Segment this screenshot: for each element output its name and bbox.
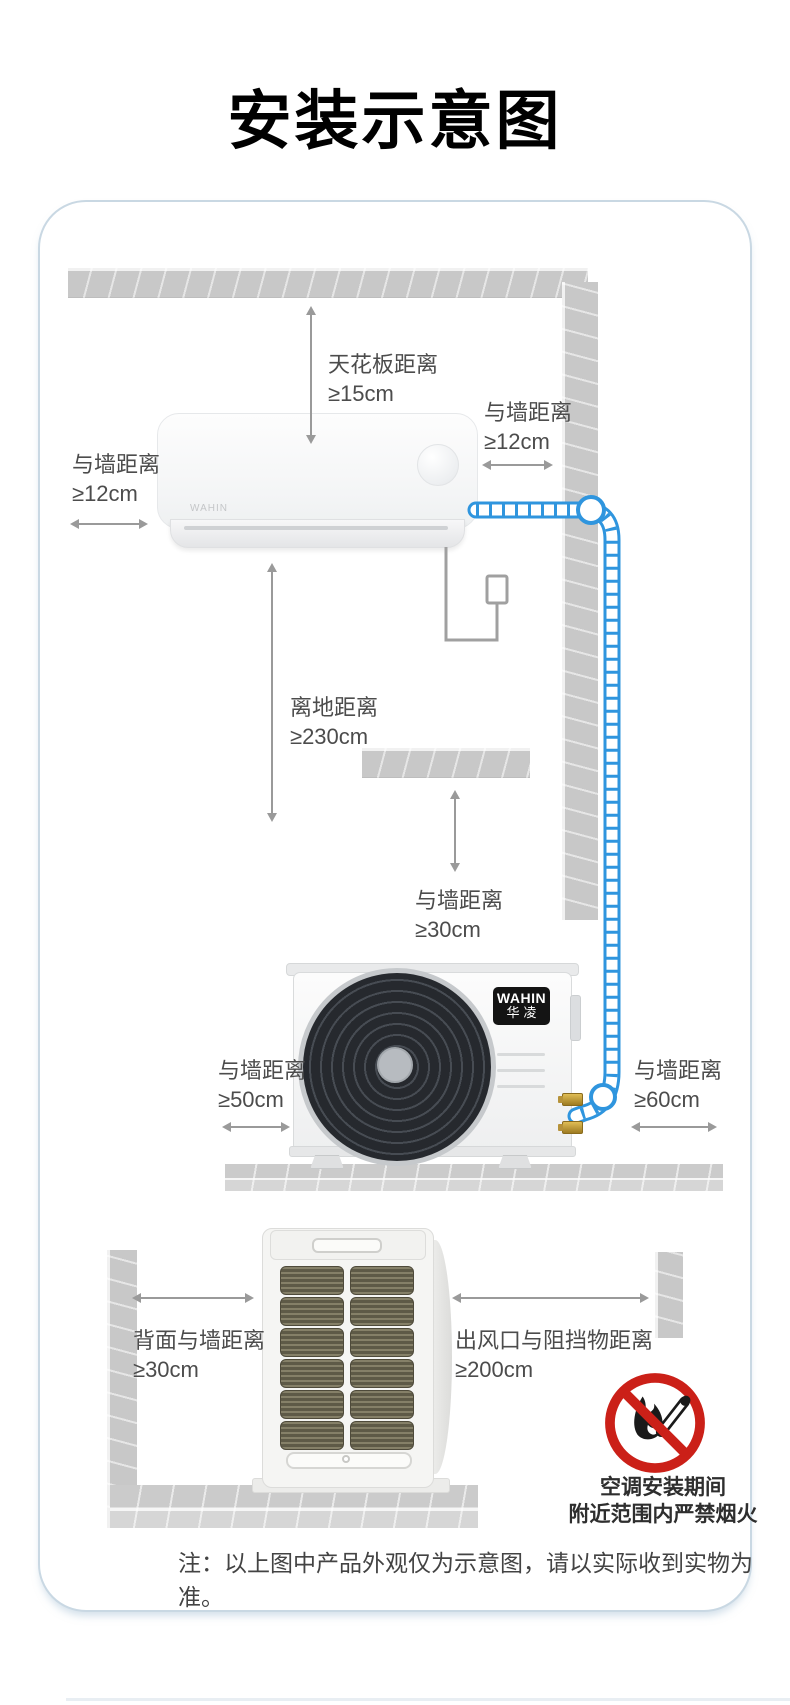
outdoor-unit-foot (310, 1155, 344, 1169)
topview-grille-cell (280, 1390, 344, 1419)
indoor-unit-outlet-slot (184, 526, 448, 530)
outdoor-side-vent (497, 1053, 545, 1056)
ceiling-distance-label: 天花板距离 ≥15cm (328, 350, 438, 408)
outdoor-side-vent (497, 1085, 545, 1088)
outdoor-wall-segment (362, 748, 530, 778)
topview-right-wall (655, 1252, 683, 1338)
outlet-distance-label: 出风口与阻挡物距离 ≥200cm (455, 1326, 653, 1384)
brand-logo-en: WAHIN (493, 991, 550, 1006)
outdoor-side-vent (497, 1069, 545, 1072)
outdoor-unit-foot (498, 1155, 532, 1169)
topview-grille-cell (350, 1266, 414, 1295)
topview-grille-cell (350, 1328, 414, 1357)
indoor-unit-dial (417, 444, 459, 486)
ceiling-beam (68, 268, 588, 298)
topview-grille-cell (350, 1390, 414, 1419)
note-text: 注：以上图中产品外观仅为示意图，请以实际收到实物为准。 (178, 1544, 790, 1612)
outdoor-fan-hub (377, 1047, 413, 1083)
right-wall-distance-label: 与墙距离 ≥12cm (484, 398, 572, 456)
indoor-unit-brand: WAHIN (190, 503, 228, 514)
topview-grille-cell (280, 1328, 344, 1357)
topview-grille-cell (280, 1421, 344, 1450)
page-title: 安装示意图 (0, 70, 790, 162)
topview-grille-cell (280, 1359, 344, 1388)
left-wall-distance-label: 与墙距离 ≥12cm (72, 450, 160, 508)
indoor-unit-flap (170, 519, 465, 548)
no-fire-icon (602, 1370, 708, 1476)
back-distance-label: 背面与墙距离 ≥30cm (133, 1326, 265, 1384)
page-bottom-divider (66, 1698, 790, 1701)
outdoor-terminal-cover (570, 995, 581, 1041)
topview-unit-handle (312, 1238, 382, 1253)
floor-distance-label: 离地距离 ≥230cm (290, 693, 378, 751)
topview-grille-cell (350, 1297, 414, 1326)
refrigerant-valve-icon (562, 1093, 583, 1106)
brand-logo-cn: 华凌 (493, 1006, 550, 1020)
refrigerant-valve-icon (562, 1121, 583, 1134)
topview-grille-cell (350, 1359, 414, 1388)
topview-unit-screw (342, 1455, 350, 1463)
installation-diagram-page: 安装示意图 WAHIN WAHIN 华凌 (0, 0, 790, 1705)
topview-grille-cell (280, 1297, 344, 1326)
topview-grille-cell (350, 1421, 414, 1450)
topview-grille-cell (280, 1266, 344, 1295)
fire-warning-text: 空调安装期间 附近范围内严禁烟火 (548, 1474, 778, 1529)
outdoor-left-distance-label: 与墙距离 ≥50cm (218, 1056, 306, 1114)
outdoor-right-distance-label: 与墙距离 ≥60cm (634, 1056, 722, 1114)
ground-platform (225, 1164, 723, 1191)
right-wall-upper (562, 282, 598, 920)
outdoor-brand-logo: WAHIN 华凌 (493, 987, 550, 1025)
outdoor-top-distance-label: 与墙距离 ≥30cm (415, 886, 503, 944)
